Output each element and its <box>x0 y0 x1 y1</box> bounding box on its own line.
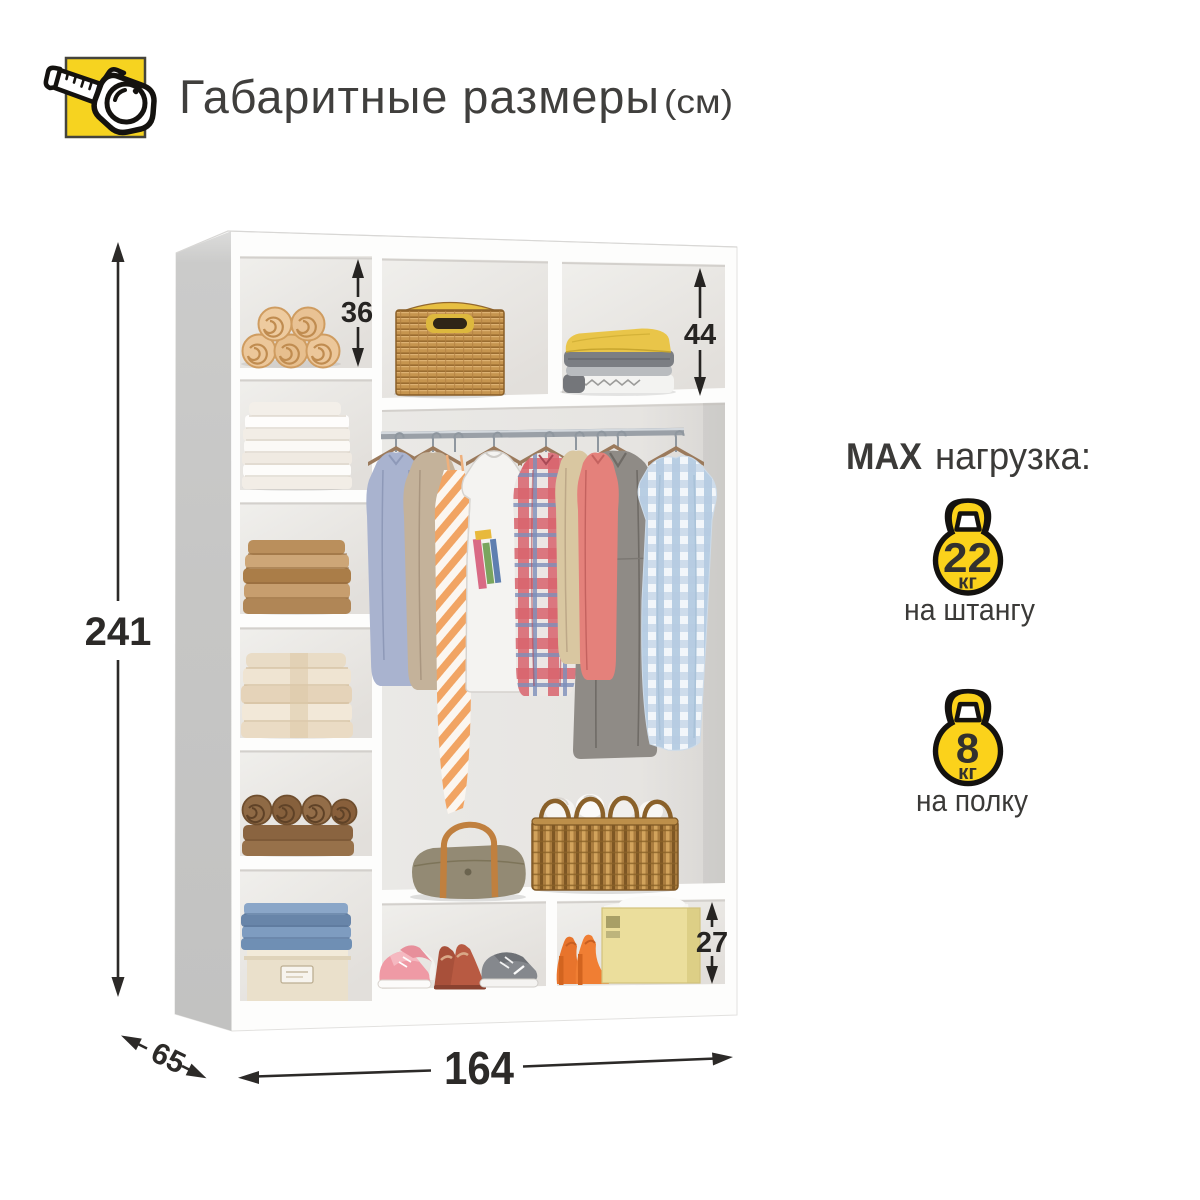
svg-text:Габаритные размеры: Габаритные размеры <box>179 70 660 123</box>
svg-text:164: 164 <box>444 1042 514 1094</box>
svg-text:241: 241 <box>85 610 152 654</box>
svg-text:MAX: MAX <box>846 436 922 477</box>
svg-text:на штангу: на штангу <box>904 592 1035 627</box>
svg-text:44: 44 <box>684 319 716 351</box>
svg-text:на полку: на полку <box>916 783 1028 818</box>
svg-text:кг: кг <box>958 571 977 594</box>
svg-text:нагрузка:: нагрузка: <box>935 436 1091 478</box>
svg-text:27: 27 <box>696 927 728 959</box>
svg-text:(см): (см) <box>664 83 733 120</box>
svg-text:36: 36 <box>341 297 373 329</box>
svg-text:кг: кг <box>958 761 977 784</box>
